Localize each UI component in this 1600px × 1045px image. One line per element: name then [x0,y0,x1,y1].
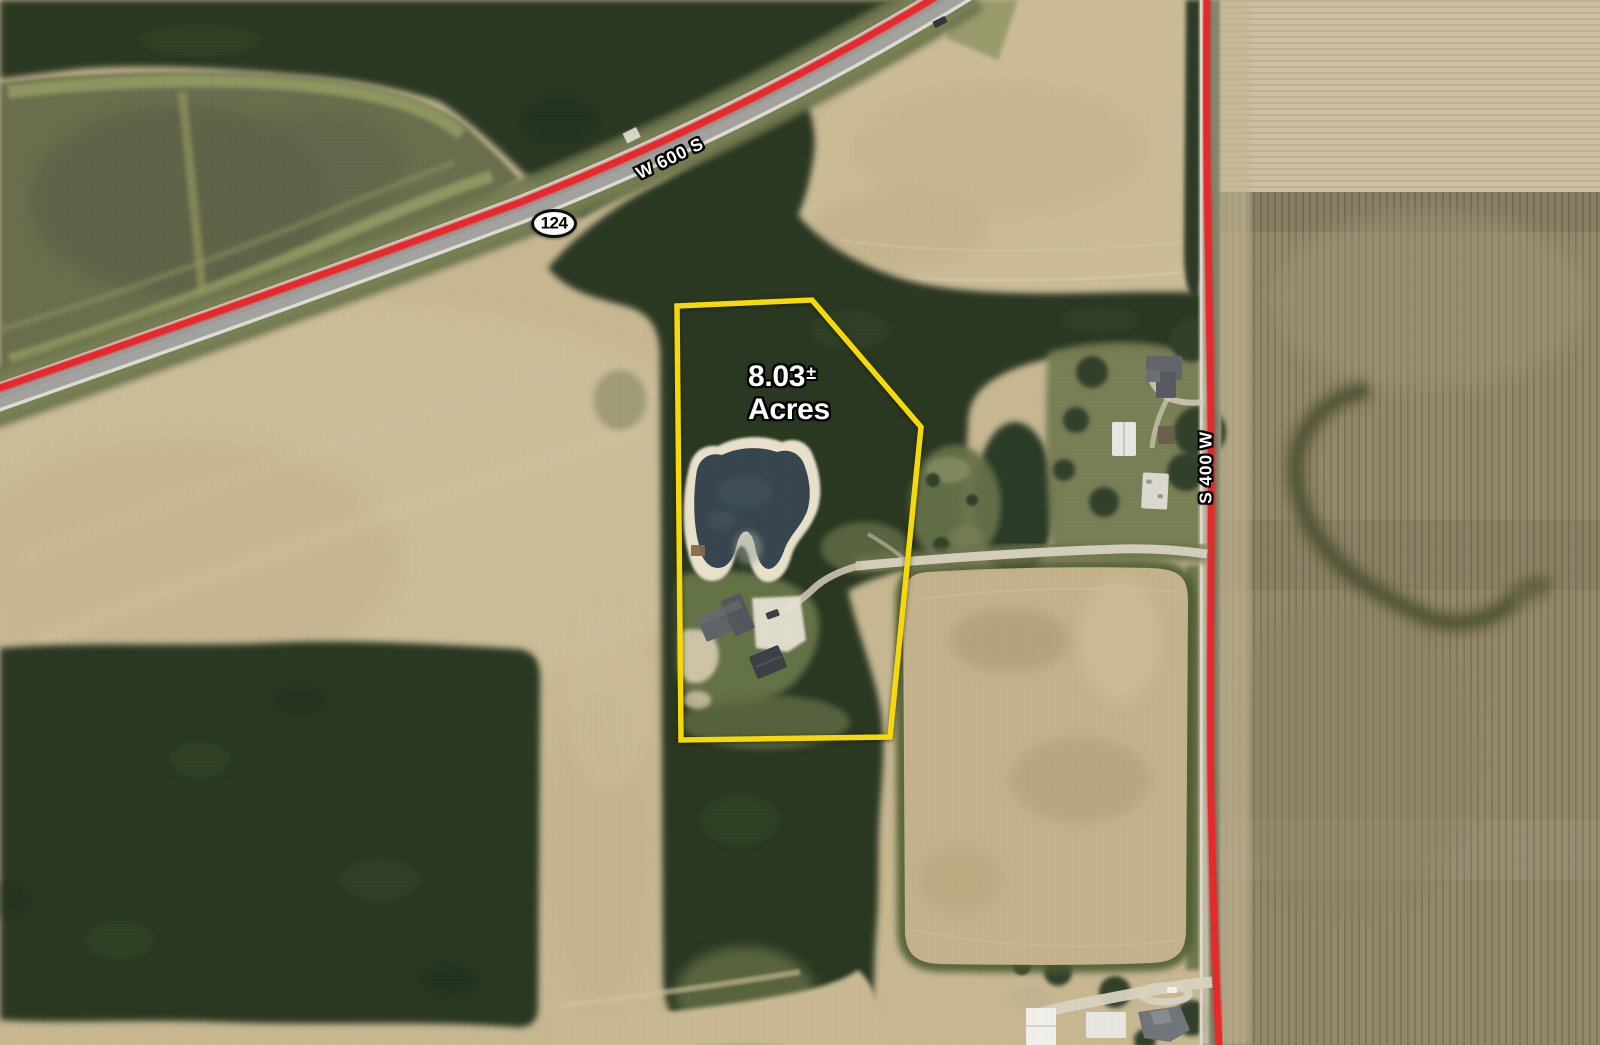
acreage-unit: Acres [748,393,830,426]
middle-east-field [903,567,1188,965]
acreage-value: 8.03 [748,360,805,393]
route-number: 124 [541,215,568,232]
east-outbuilding [1141,472,1169,509]
east-field [1200,0,1600,1045]
acreage-tolerance: ± [806,363,816,383]
route-124-shield-icon: 124 [531,209,577,238]
south-shed [1086,1012,1126,1038]
south-barn [1026,1008,1056,1045]
acreage-label: 8.03± Acres [748,360,830,426]
east-shed [1158,426,1174,444]
driveway-pad [752,596,806,652]
aerial-map-canvas [0,0,1600,1045]
acreage-value-line: 8.03± [748,360,830,393]
road-label-s-400-w: S 400 W [1196,418,1217,518]
east-barn [1112,422,1136,456]
road-s400w [1199,0,1221,1045]
dock [691,545,705,556]
aerial-property-map: 8.03± Acres W 600 S 124 S 400 W [0,0,1600,1045]
